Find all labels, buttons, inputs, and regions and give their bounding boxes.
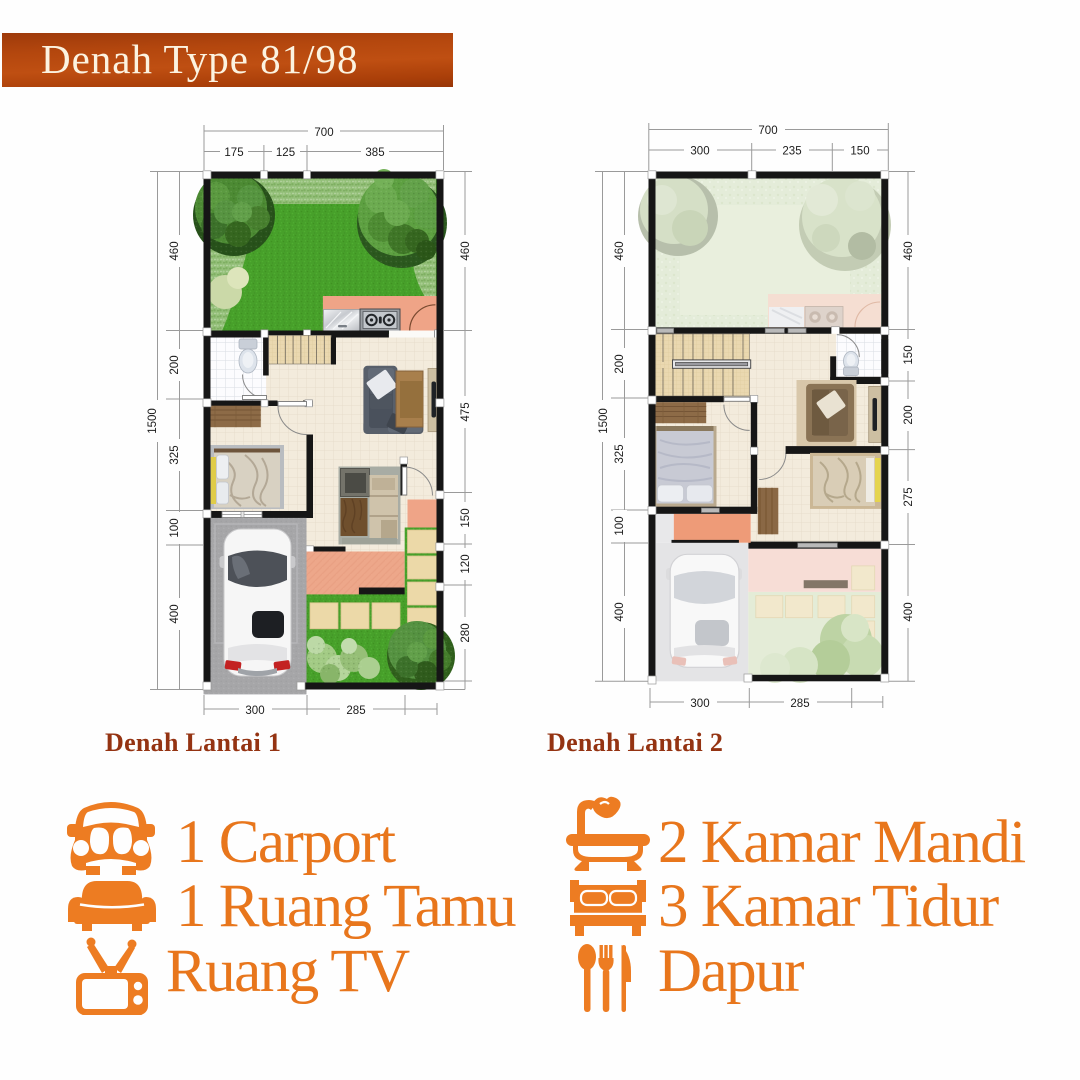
svg-text:460: 460 (903, 241, 915, 260)
svg-text:325: 325 (614, 444, 626, 463)
svg-text:125: 125 (276, 147, 295, 159)
svg-text:385: 385 (365, 147, 384, 159)
svg-text:325: 325 (169, 445, 181, 464)
svg-text:200: 200 (903, 405, 915, 424)
svg-text:285: 285 (346, 705, 365, 717)
svg-text:150: 150 (903, 345, 915, 364)
svg-text:400: 400 (903, 602, 915, 621)
svg-text:460: 460 (614, 241, 626, 260)
svg-text:700: 700 (314, 127, 333, 139)
svg-text:100: 100 (169, 518, 181, 537)
svg-text:400: 400 (169, 604, 181, 623)
svg-text:275: 275 (903, 487, 915, 506)
svg-text:200: 200 (614, 354, 626, 373)
svg-text:150: 150 (850, 146, 869, 158)
svg-text:300: 300 (690, 698, 709, 710)
svg-text:400: 400 (614, 602, 626, 621)
svg-text:120: 120 (460, 554, 472, 573)
svg-text:175: 175 (224, 147, 243, 159)
svg-text:1500: 1500 (598, 408, 610, 434)
svg-text:300: 300 (245, 705, 264, 717)
svg-text:150: 150 (460, 508, 472, 527)
svg-text:300: 300 (690, 146, 709, 158)
svg-text:1500: 1500 (147, 408, 159, 434)
svg-text:200: 200 (169, 355, 181, 374)
svg-text:460: 460 (169, 241, 181, 260)
svg-text:280: 280 (460, 623, 472, 642)
svg-text:285: 285 (790, 698, 809, 710)
svg-text:235: 235 (782, 146, 801, 158)
svg-text:100: 100 (614, 516, 626, 535)
svg-text:475: 475 (460, 402, 472, 421)
svg-text:460: 460 (460, 241, 472, 260)
svg-text:700: 700 (758, 125, 777, 137)
